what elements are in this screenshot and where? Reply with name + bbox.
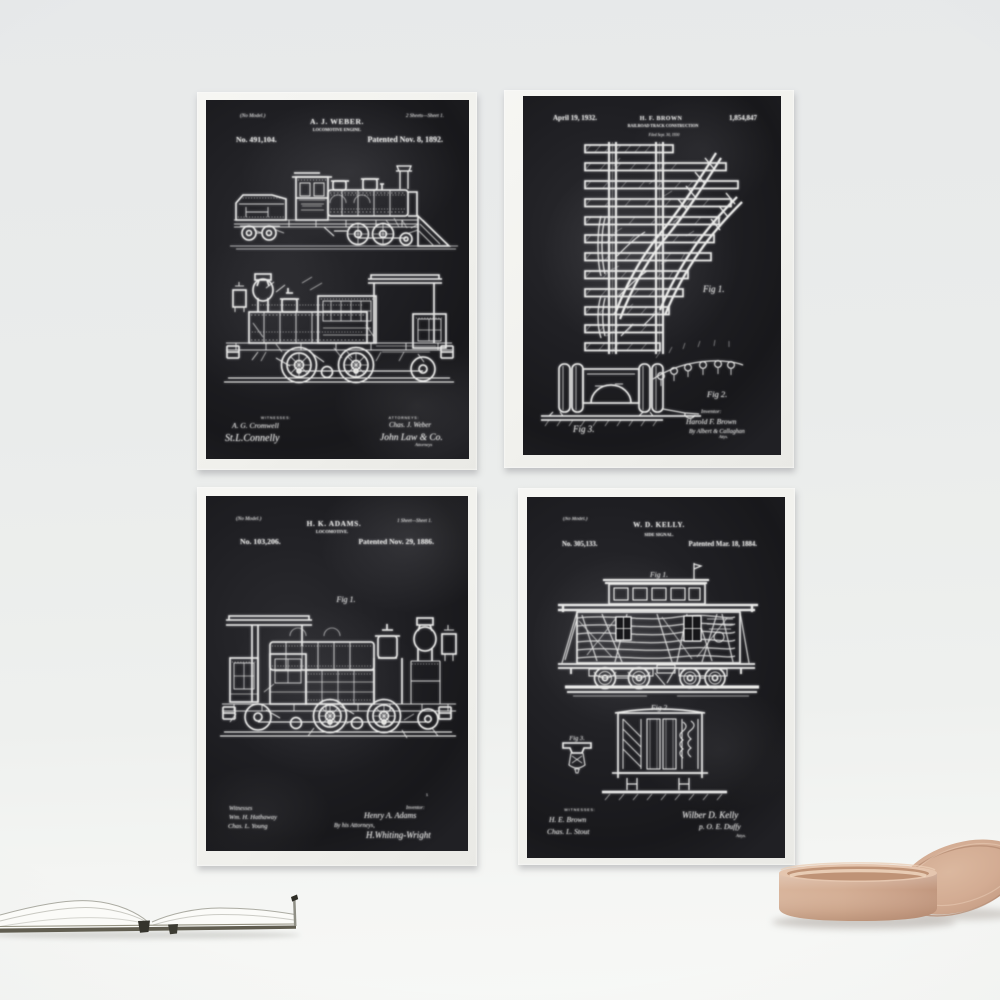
- svg-text:Attys.: Attys.: [735, 833, 746, 838]
- svg-text:Wm. H. Hathaway: Wm. H. Hathaway: [229, 814, 277, 821]
- svg-text:Wilber D. Kelly: Wilber D. Kelly: [682, 810, 738, 820]
- svg-text:1,854,847: 1,854,847: [729, 114, 758, 122]
- svg-text:(No Model.): (No Model.): [236, 515, 262, 522]
- svg-text:Patented Nov. 8, 1892.: Patented Nov. 8, 1892.: [367, 135, 443, 144]
- svg-text:p. O. E. Duffy: p. O. E. Duffy: [698, 822, 741, 831]
- svg-text:Patented Mar. 18, 1884.: Patented Mar. 18, 1884.: [689, 541, 758, 548]
- svg-text:Witnesses: Witnesses: [229, 806, 253, 812]
- svg-text:RAILROAD TRACK CONSTRUCTION: RAILROAD TRACK CONSTRUCTION: [628, 123, 699, 128]
- svg-text:Fig 1.: Fig 1.: [335, 595, 355, 604]
- svg-text:By Albert & Callaghan: By Albert & Callaghan: [689, 429, 745, 435]
- svg-text:Chas. L. Young: Chas. L. Young: [228, 823, 268, 830]
- svg-text:1 Sheet—Sheet 1.: 1 Sheet—Sheet 1.: [397, 519, 432, 524]
- svg-text:W. D. KELLY.: W. D. KELLY.: [633, 521, 685, 529]
- svg-text:WITNESSES:: WITNESSES:: [261, 416, 291, 420]
- svg-text:LOCOMOTIVE ENGINE.: LOCOMOTIVE ENGINE.: [313, 127, 361, 132]
- svg-text:(No Model.): (No Model.): [563, 517, 588, 522]
- svg-text:By his Attorneys,: By his Attorneys,: [334, 823, 375, 829]
- svg-text:April 19, 1932.: April 19, 1932.: [553, 114, 597, 122]
- svg-text:Patented Nov. 29, 1886.: Patented Nov. 29, 1886.: [358, 537, 434, 546]
- svg-text:Fig 1.: Fig 1.: [649, 570, 668, 579]
- svg-text:Fig 3.: Fig 3.: [572, 424, 595, 434]
- svg-text:John Law & Co.: John Law & Co.: [380, 433, 443, 443]
- svg-text:Inventor:: Inventor:: [700, 409, 722, 415]
- svg-text:H. K. ADAMS.: H. K. ADAMS.: [307, 519, 362, 528]
- svg-text:1: 1: [426, 792, 429, 797]
- svg-text:Harold F. Brown: Harold F. Brown: [685, 417, 737, 426]
- svg-text:A. G. Cromwell: A. G. Cromwell: [231, 421, 279, 430]
- svg-text:SIDE SIGNAL.: SIDE SIGNAL.: [644, 532, 673, 537]
- svg-text:No. 305,133.: No. 305,133.: [562, 541, 598, 548]
- svg-text:Fig 3.: Fig 3.: [568, 735, 585, 742]
- svg-text:(No Model.): (No Model.): [240, 112, 266, 119]
- svg-text:Fig 2.: Fig 2.: [706, 389, 727, 399]
- svg-text:St.L.Connelly: St.L.Connelly: [225, 433, 280, 444]
- svg-text:WITNESSES:: WITNESSES:: [564, 808, 595, 812]
- svg-text:H.Whiting-Wright: H.Whiting-Wright: [365, 830, 431, 840]
- svg-text:No. 103,206.: No. 103,206.: [240, 537, 281, 546]
- svg-text:2 Sheets—Sheet 1.: 2 Sheets—Sheet 1.: [406, 113, 444, 119]
- svg-text:Fig 1.: Fig 1.: [702, 284, 725, 294]
- svg-text:ATTORNEYS:: ATTORNEYS:: [389, 416, 420, 420]
- svg-text:Fig 2.: Fig 2.: [650, 703, 669, 712]
- svg-text:No. 491,104.: No. 491,104.: [236, 135, 277, 144]
- svg-text:H. E. Brown: H. E. Brown: [548, 815, 586, 824]
- svg-text:A. J. WEBER.: A. J. WEBER.: [310, 117, 364, 126]
- svg-text:Filed Sept. 30, 1930: Filed Sept. 30, 1930: [648, 133, 680, 138]
- svg-text:Attorneys: Attorneys: [414, 442, 432, 447]
- svg-text:LOCOMOTIVE.: LOCOMOTIVE.: [316, 529, 348, 534]
- svg-text:Chas. J. Weber: Chas. J. Weber: [389, 421, 431, 429]
- svg-text:Henry A. Adams: Henry A. Adams: [363, 811, 416, 820]
- svg-text:H. F. BROWN: H. F. BROWN: [640, 116, 683, 122]
- svg-text:Attys.: Attys.: [718, 434, 728, 439]
- svg-text:Chas. L. Stout: Chas. L. Stout: [547, 827, 590, 836]
